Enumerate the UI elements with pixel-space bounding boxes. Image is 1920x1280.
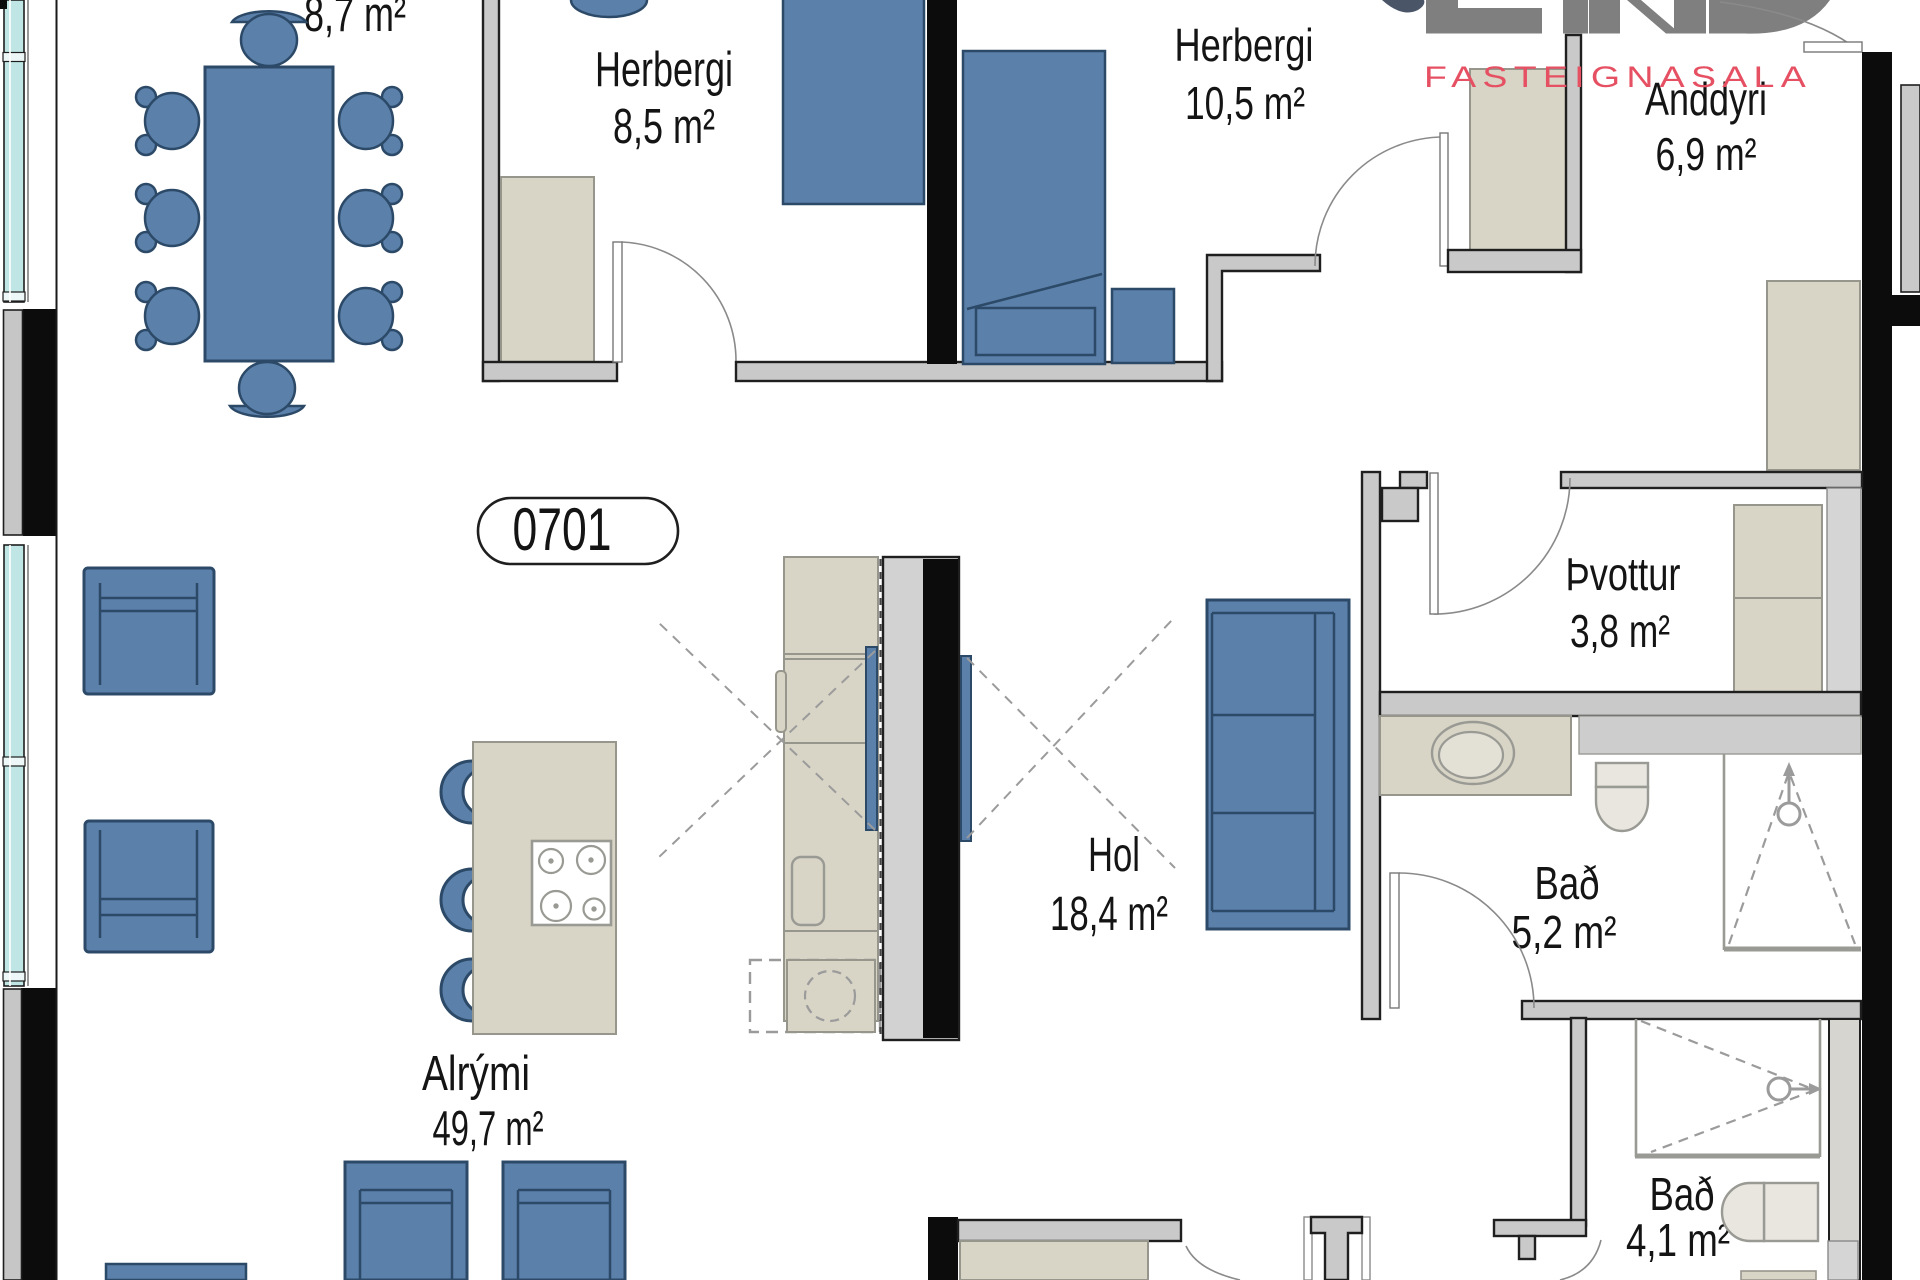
svg-text:49,7 m²: 49,7 m² — [433, 1102, 544, 1156]
svg-text:5,2 m²: 5,2 m² — [1512, 906, 1617, 958]
svg-text:18,4 m²: 18,4 m² — [1050, 888, 1168, 941]
svg-text:Bað: Bað — [1650, 1168, 1715, 1220]
svg-text:Hol: Hol — [1088, 829, 1140, 882]
svg-text:6,9 m²: 6,9 m² — [1656, 128, 1757, 180]
svg-text:FASTEIGNASALA: FASTEIGNASALA — [1424, 61, 1812, 94]
svg-text:Bað: Bað — [1535, 857, 1600, 909]
svg-text:Þvottur: Þvottur — [1566, 548, 1681, 600]
svg-text:0701: 0701 — [513, 496, 612, 563]
svg-text:10,5 m²: 10,5 m² — [1185, 77, 1305, 129]
svg-text:8,7 m²: 8,7 m² — [304, 0, 406, 42]
svg-text:3,8 m²: 3,8 m² — [1570, 605, 1670, 657]
svg-text:Alrými: Alrými — [422, 1047, 530, 1101]
svg-text:8,5 m²: 8,5 m² — [613, 100, 715, 154]
svg-text:4,1 m²: 4,1 m² — [1626, 1214, 1730, 1266]
svg-text:Herbergi: Herbergi — [1175, 19, 1314, 71]
svg-text:Herbergi: Herbergi — [595, 43, 733, 97]
